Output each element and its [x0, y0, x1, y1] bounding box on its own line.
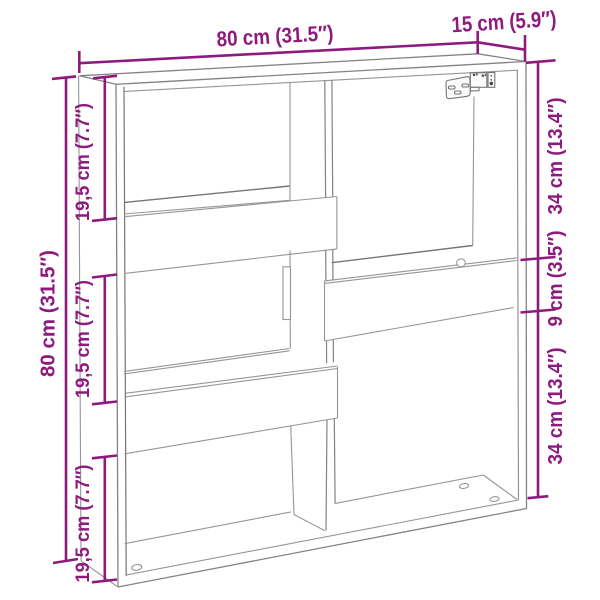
- svg-text:34 cm (13.4″): 34 cm (13.4″): [545, 348, 567, 465]
- svg-text:19,5 cm (7.7″): 19,5 cm (7.7″): [73, 103, 94, 221]
- svg-text:19,5 cm (7.7″): 19,5 cm (7.7″): [73, 465, 94, 583]
- svg-text:34 cm (13.4″): 34 cm (13.4″): [545, 98, 567, 215]
- svg-text:9 cm (3.5″): 9 cm (3.5″): [545, 231, 567, 327]
- svg-text:19,5 cm (7.7″): 19,5 cm (7.7″): [73, 280, 94, 398]
- svg-text:80 cm (31.5″): 80 cm (31.5″): [38, 250, 60, 377]
